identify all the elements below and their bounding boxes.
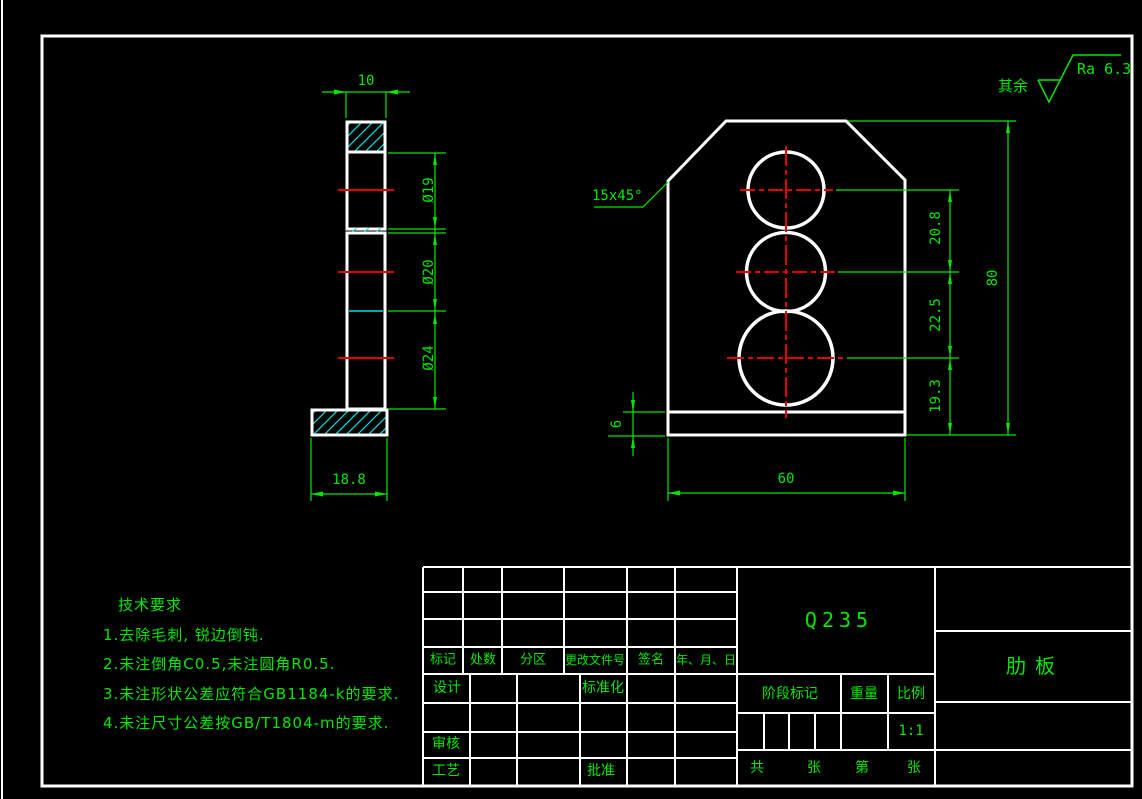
role-design: 设计: [433, 681, 461, 695]
tech-requirement-item: 1.去除毛刺, 锐边倒钝.: [103, 628, 265, 643]
front-view: [668, 121, 905, 435]
dim-chamfer: 15x45°: [592, 189, 643, 203]
role-approve: 批准: [587, 764, 615, 778]
rev-header-count: 处数: [470, 654, 496, 667]
surface-prefix-label: 其余: [998, 79, 1028, 94]
dim-d24: Ø24: [422, 345, 436, 370]
front-view-dimensions: [594, 121, 1016, 501]
sheet-total-unit: 张: [807, 761, 821, 775]
sheet-frame: [2, 0, 1132, 799]
role-standardization: 标准化: [582, 681, 624, 695]
dim-h2: 22.5: [929, 298, 943, 332]
dim-d19: Ø19: [422, 177, 436, 202]
tech-requirement-item: 4.未注尺寸公差按GB/T1804-m的要求.: [103, 716, 389, 731]
tech-requirements-title: 技术要求: [118, 598, 182, 613]
dim-total-height: 80: [986, 270, 1000, 287]
role-review: 审核: [432, 737, 460, 751]
tech-requirement-item: 2.未注倒角C0.5,未注圆角R0.5.: [103, 657, 335, 672]
weight-label: 重量: [850, 687, 878, 701]
rev-header-zone: 分区: [520, 654, 546, 667]
tech-requirement-item: 3.未注形状公差应符合GB1184-k的要求.: [103, 687, 399, 702]
dim-front-base: 60: [778, 472, 795, 486]
role-process: 工艺: [432, 764, 460, 778]
dim-h3: 19.3: [929, 379, 943, 413]
dim-base-thickness: 6: [610, 420, 624, 428]
cad-drawing-page: 10 Ø19 Ø20 Ø24 18.8 15x45° 20.8 22.5 19.…: [0, 0, 1142, 799]
rev-header-date: 年、月、日: [676, 654, 736, 666]
dim-top-width: 10: [358, 74, 375, 88]
rev-header-mark: 标记: [430, 654, 456, 667]
side-view: [312, 122, 394, 435]
scale-value: 1:1: [898, 724, 923, 738]
sheet-total-label: 共: [750, 761, 764, 775]
dim-side-base: 18.8: [332, 473, 366, 487]
scale-label: 比例: [897, 687, 925, 701]
rev-header-sign: 签名: [638, 654, 664, 667]
material-label: Q235: [805, 610, 873, 630]
sheet-number-unit: 张: [907, 761, 921, 775]
rev-header-doc-no: 更改文件号: [565, 654, 625, 666]
part-name-label: 肋板: [1006, 656, 1064, 676]
dim-d20: Ø20: [422, 259, 436, 284]
surface-roughness-value: Ra 6.3: [1077, 62, 1131, 77]
stage-label: 阶段标记: [762, 687, 818, 701]
dim-h1: 20.8: [929, 211, 943, 245]
drawing-canvas: [0, 0, 1142, 799]
sheet-number-label: 第: [855, 761, 869, 775]
